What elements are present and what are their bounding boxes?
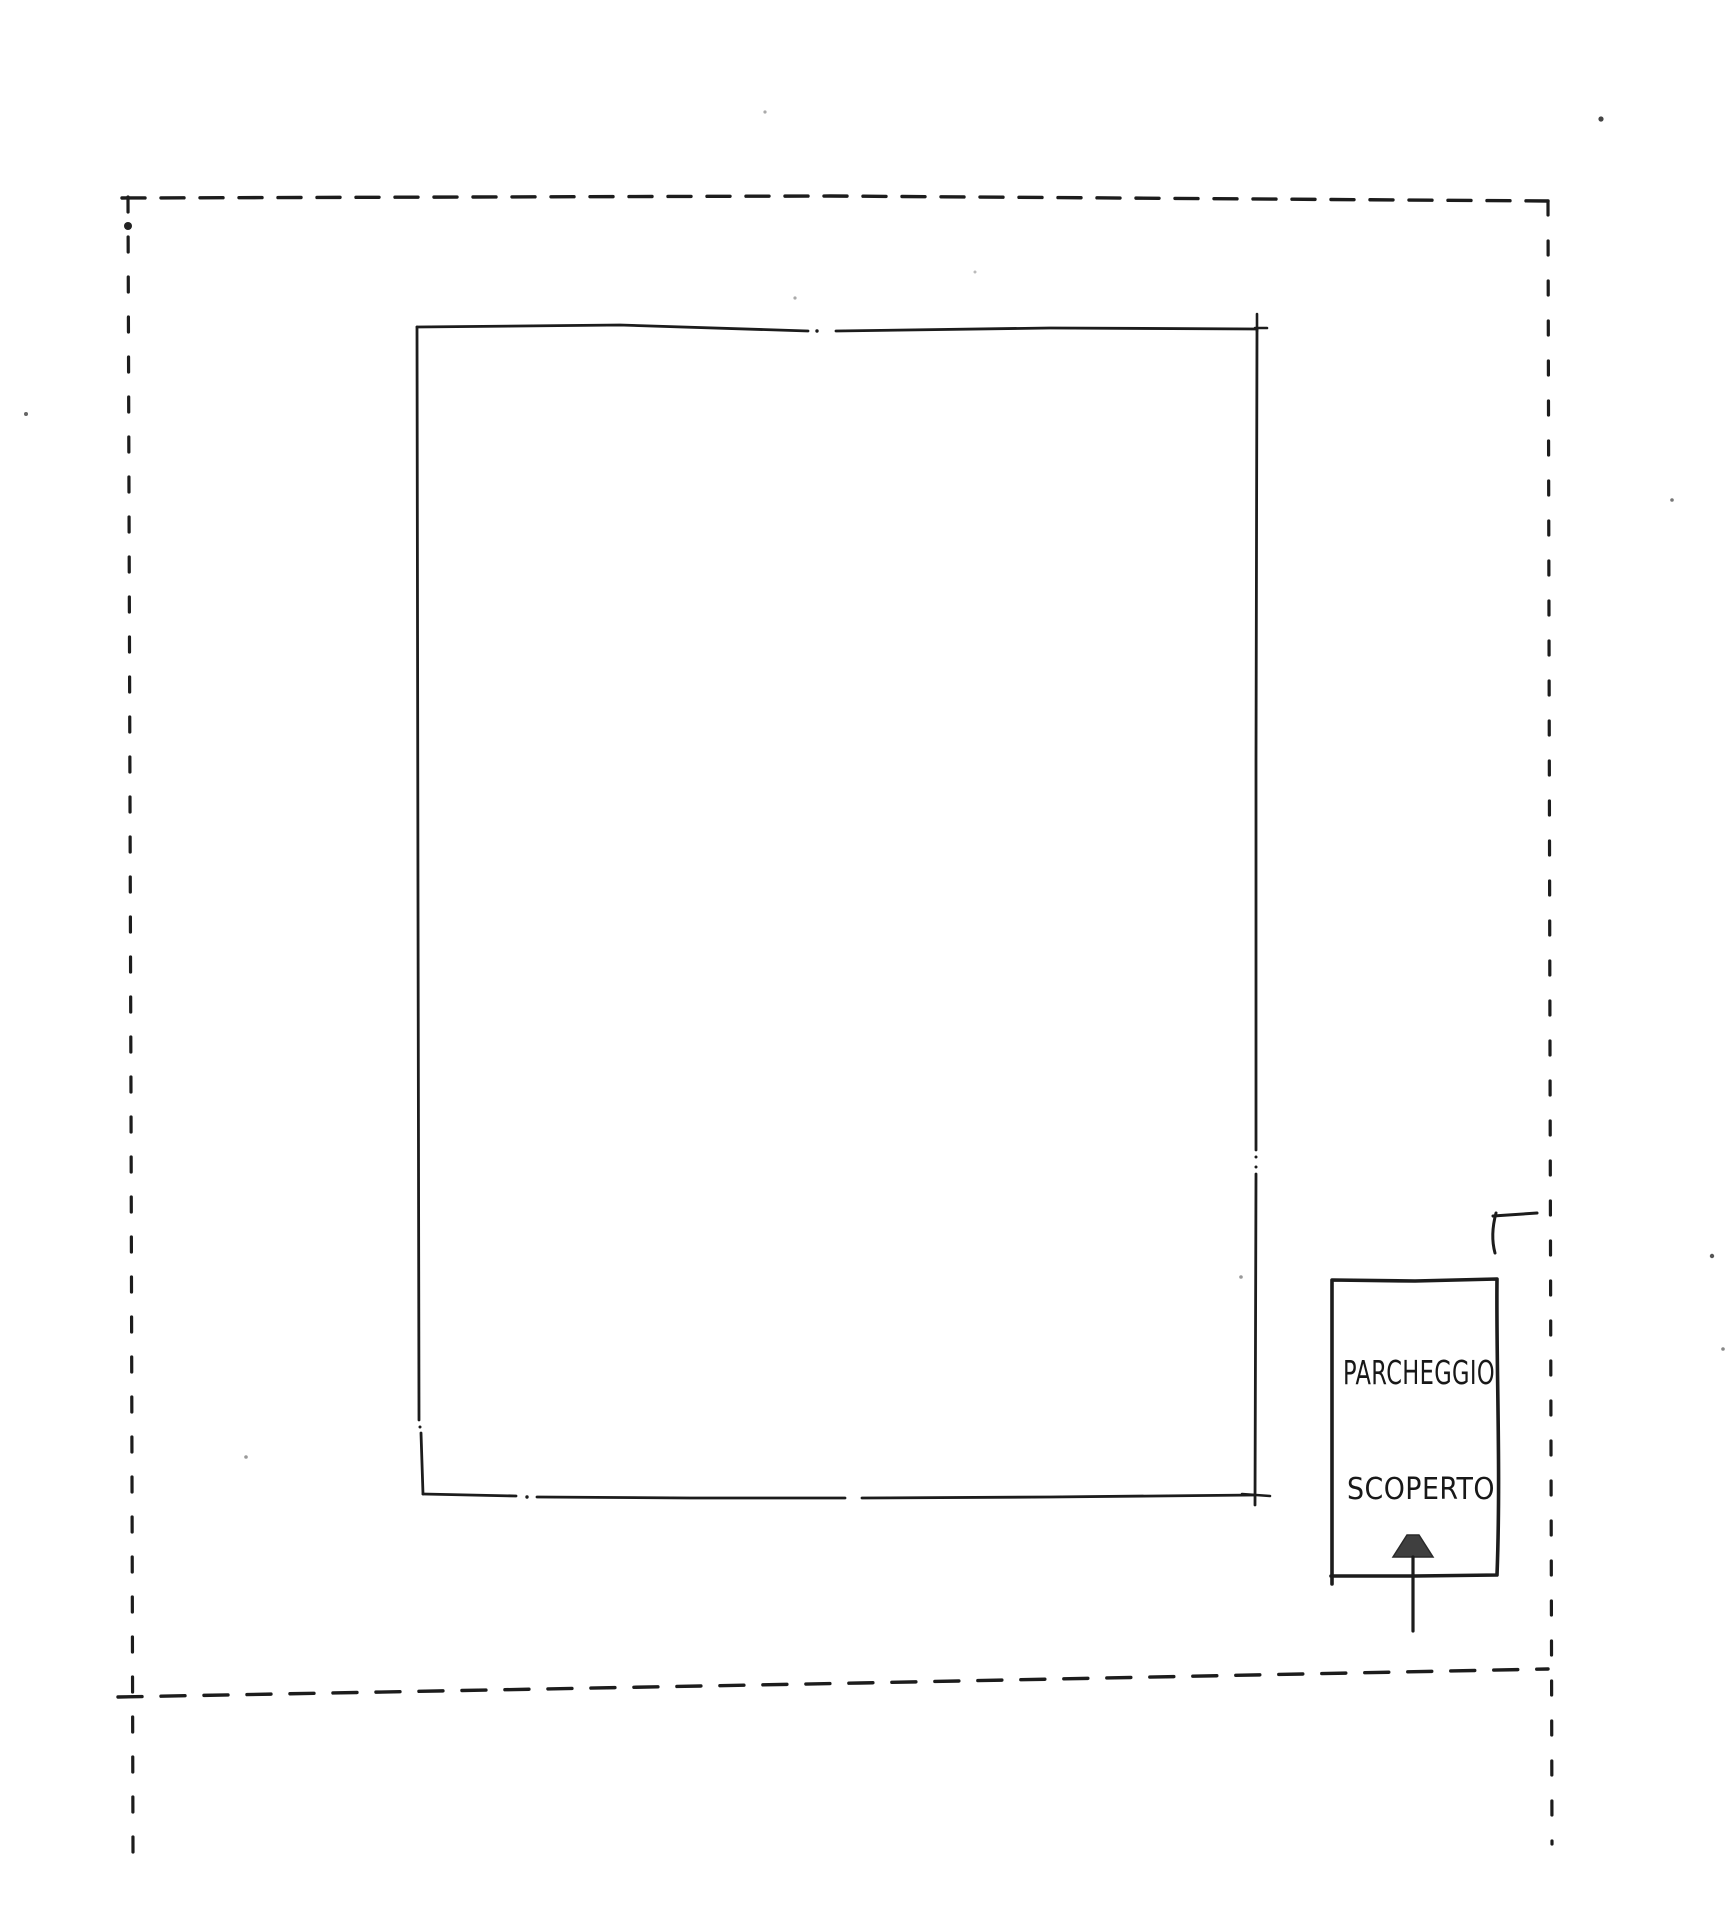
site-boundary-dashed xyxy=(118,196,1552,1853)
scanned-plan-sheet: PARCHEGGIO SCOPERTO xyxy=(0,0,1731,1931)
plan-drawing: PARCHEGGIO SCOPERTO xyxy=(0,0,1731,1931)
building-left-edge xyxy=(417,327,419,1420)
building-bottom-edge xyxy=(423,1494,516,1496)
building-right-edge xyxy=(1255,1174,1256,1505)
entrance-arrow xyxy=(1393,1535,1433,1631)
boundary-bottom-dashed-line xyxy=(118,1669,1548,1697)
ink-speck xyxy=(974,271,977,274)
building-bottom-edge-dot xyxy=(525,1495,528,1498)
arrow-up-icon xyxy=(1393,1535,1433,1557)
building-outline xyxy=(417,314,1270,1505)
notch-vertical-line xyxy=(1493,1213,1496,1253)
building-top-edge-dot xyxy=(815,329,818,332)
building-right-edge-dot xyxy=(1255,1166,1258,1169)
ink-specks xyxy=(24,110,1725,1458)
boundary-right-dashed-line xyxy=(1548,201,1552,1844)
ink-speck xyxy=(793,296,796,299)
ink-speck xyxy=(1710,1254,1714,1258)
building-bottom-edge xyxy=(862,1495,1255,1498)
notch-horizontal-line xyxy=(1493,1213,1537,1216)
boundary-left-dashed-line xyxy=(128,197,133,1853)
ink-speck xyxy=(24,412,28,416)
ink-speck xyxy=(124,222,132,230)
building-top-edge xyxy=(836,328,1257,331)
building-right-edge-dot xyxy=(1255,1156,1258,1159)
ink-speck xyxy=(1598,116,1603,121)
ink-speck xyxy=(1670,498,1674,502)
building-right-edge xyxy=(1256,329,1257,1150)
boundary-top-dashed-line xyxy=(122,196,1548,201)
ink-speck xyxy=(763,110,766,113)
parking-stall: PARCHEGGIO SCOPERTO xyxy=(1331,1279,1499,1631)
parking-label-line1: PARCHEGGIO xyxy=(1343,1353,1495,1392)
ink-speck xyxy=(244,1455,248,1459)
boundary-notch xyxy=(1493,1213,1537,1253)
building-left-edge-dot xyxy=(419,1426,422,1429)
building-top-edge xyxy=(417,325,808,331)
parking-label-line2: SCOPERTO xyxy=(1347,1472,1495,1507)
ink-speck xyxy=(1721,1347,1725,1351)
building-bottom-edge xyxy=(537,1497,845,1498)
ink-speck xyxy=(1239,1275,1243,1279)
building-left-edge xyxy=(421,1433,423,1494)
